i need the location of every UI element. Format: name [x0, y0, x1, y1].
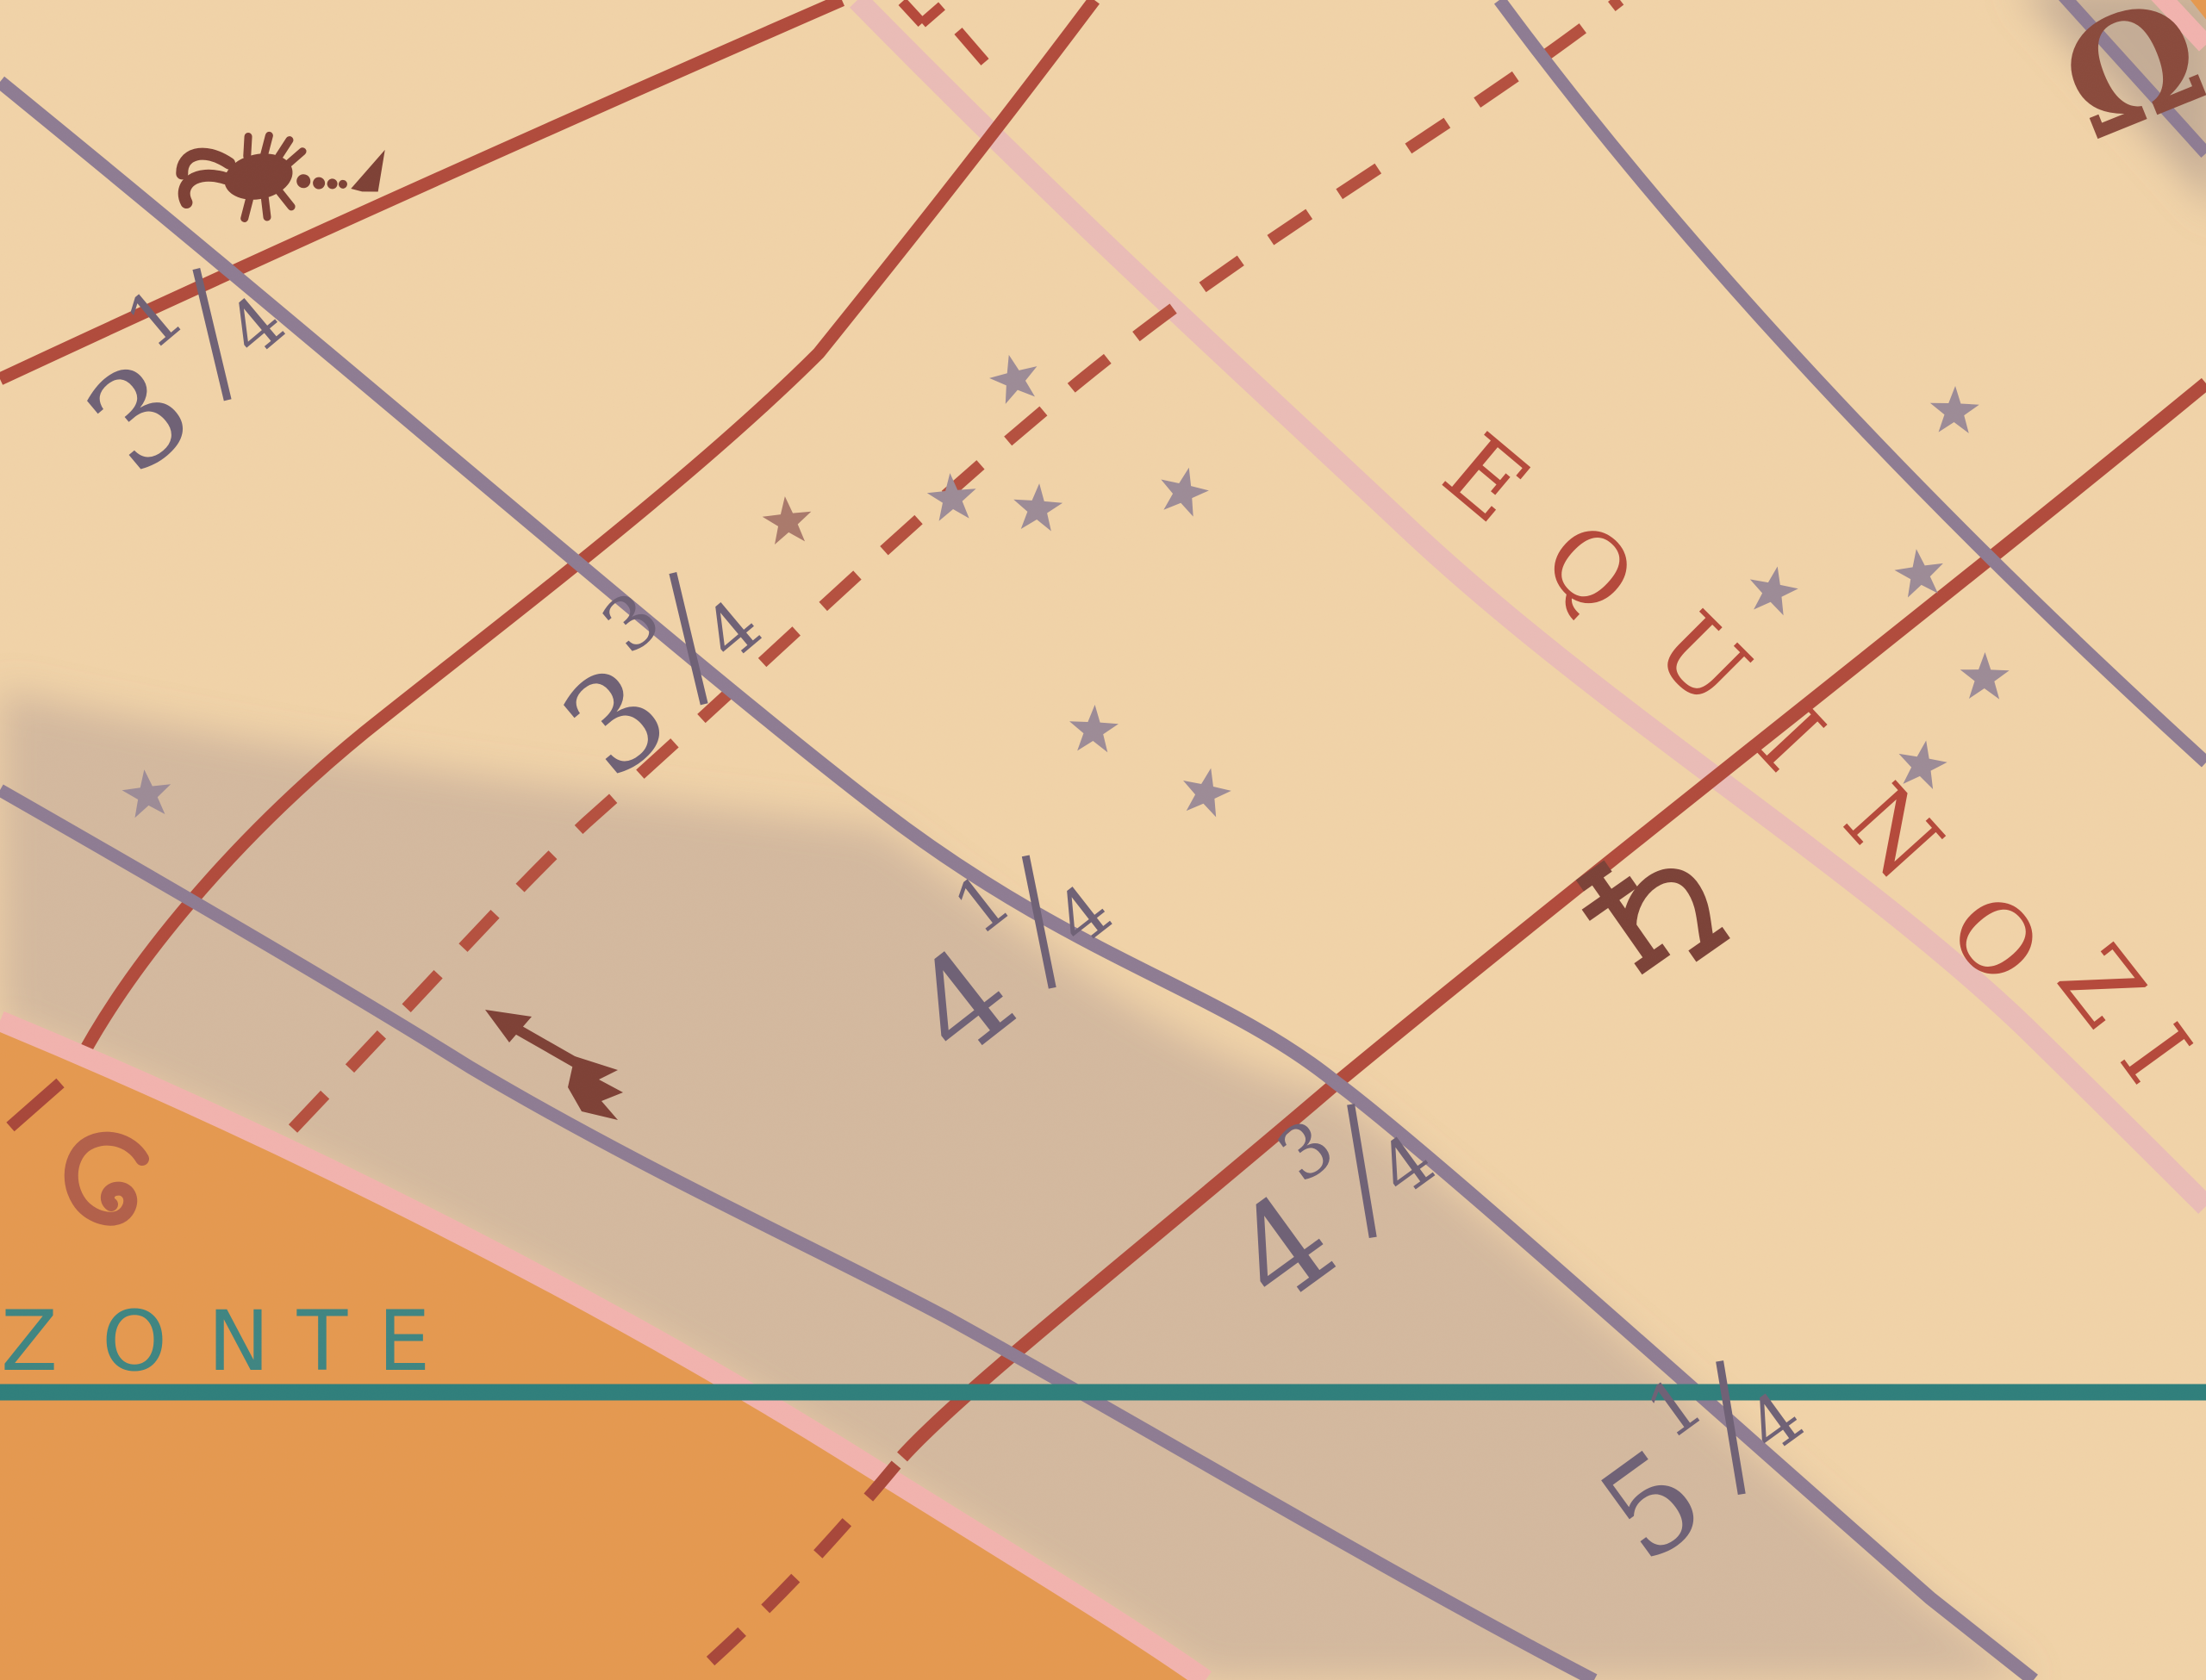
celestial-map-canvas: Ω EQUINOZI ZONTE 314334414434514: [0, 0, 2206, 1680]
celestial-map-svg: Ω EQUINOZI ZONTE 314334414434514: [0, 0, 2206, 1680]
paper-grain-overlay: [0, 0, 2206, 1680]
